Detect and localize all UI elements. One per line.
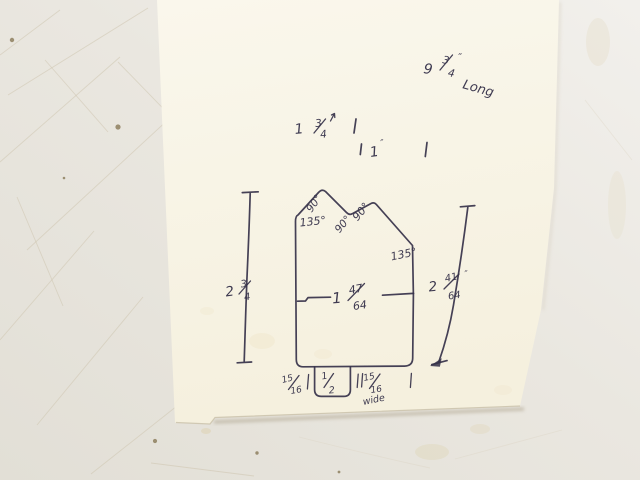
photo-of-sketch: 9 3 4 ″ Long 1 3 4 1 ″ 90° 135° 90° 90° … bbox=[0, 0, 640, 480]
mid-width-whole: 1 bbox=[331, 289, 342, 308]
mid-width-num: 47 bbox=[348, 282, 364, 297]
tab-width-den: 2 bbox=[328, 385, 335, 396]
right-height-whole: 2 bbox=[428, 279, 438, 296]
top-width-den: 4 bbox=[320, 128, 328, 141]
bottom-left-den: 16 bbox=[290, 385, 303, 397]
angle-label-left-shoulder: 135° bbox=[299, 214, 327, 230]
right-height-den: 64 bbox=[447, 290, 461, 303]
mid-width-den: 64 bbox=[352, 298, 368, 313]
top-width-lead: 1 bbox=[294, 121, 305, 138]
